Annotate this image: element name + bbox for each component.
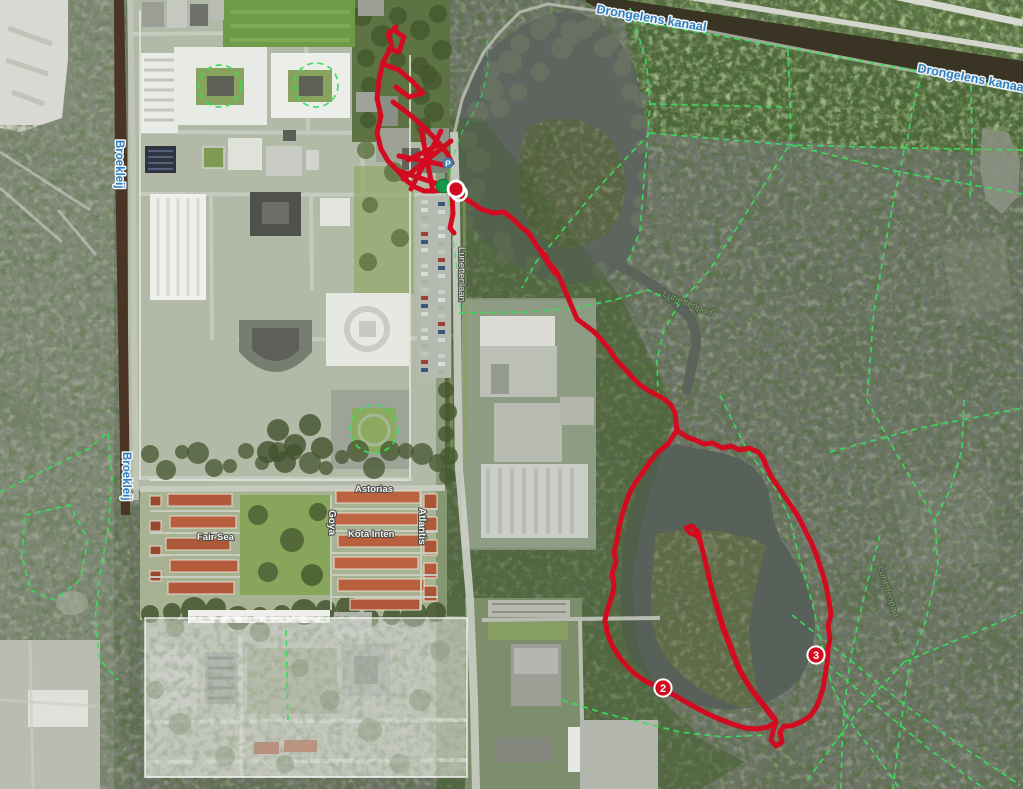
svg-text:2: 2 [660,683,666,695]
svg-text:Atlantis: Atlantis [416,508,427,545]
svg-text:3: 3 [813,650,819,662]
svg-text:P: P [445,159,451,169]
svg-text:Goya: Goya [326,510,337,535]
svg-text:Lunettenlaan: Lunettenlaan [456,247,467,302]
svg-text:Fair Sea: Fair Sea [197,532,235,543]
svg-text:Kota Inten: Kota Inten [348,529,395,540]
svg-text:Broekleij: Broekleij [113,140,125,189]
svg-text:Broekleij: Broekleij [120,452,132,501]
svg-text:Astorias: Astorias [355,484,393,495]
